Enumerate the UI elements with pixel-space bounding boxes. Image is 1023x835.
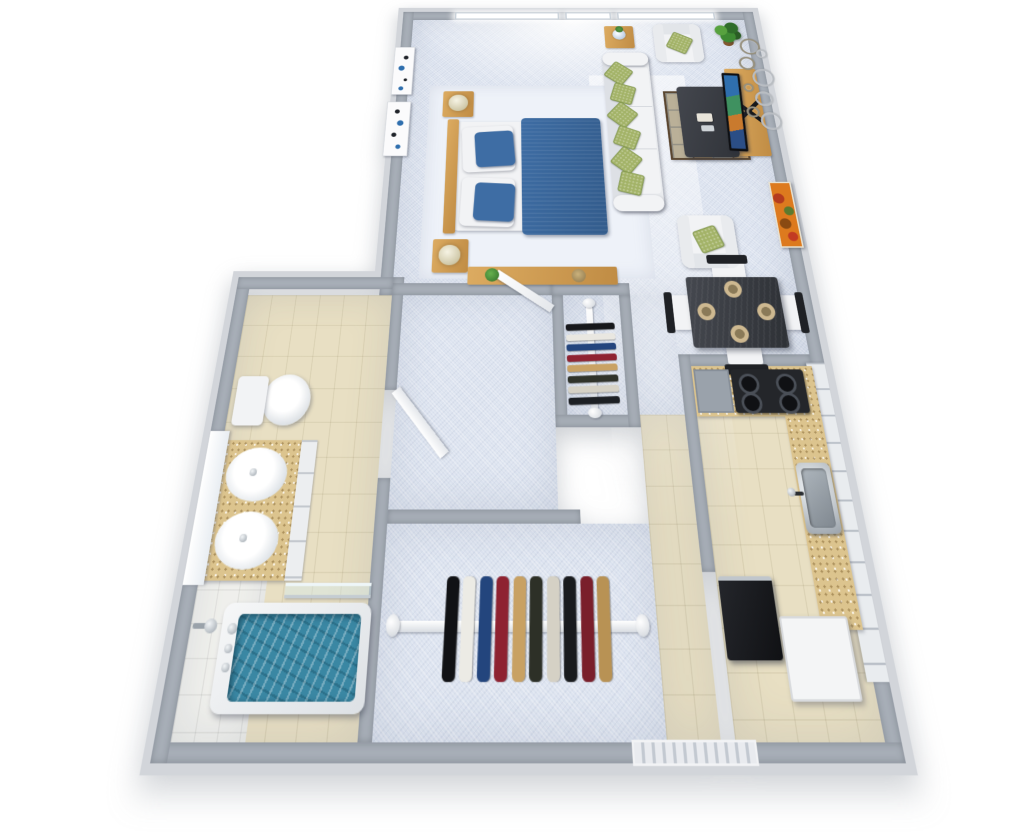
- wall-art-dots-1: [391, 47, 415, 95]
- burner-4: [778, 393, 802, 414]
- window-pane-middle: [565, 12, 611, 19]
- bed-pillow-blue-bottom: [473, 182, 516, 222]
- burner-3: [740, 393, 764, 414]
- bathtub-water: [226, 614, 361, 702]
- apartment-3d-scene: [108, 12, 906, 763]
- wall-bottom: [150, 742, 906, 763]
- clothing-item: [529, 576, 542, 682]
- apartment-plan: [108, 12, 906, 763]
- small-closet-rod-cap-top: [582, 298, 595, 307]
- clothing-item: [547, 576, 560, 682]
- floorplan-canvas: [0, 0, 1023, 835]
- vase-greenery: [615, 26, 623, 32]
- bed-blue-blanket: [521, 118, 608, 235]
- burner-1: [737, 374, 760, 395]
- clothing-item: [512, 576, 526, 682]
- console-round-tray: [571, 269, 586, 282]
- kitchen-gray-cabinet: [693, 369, 734, 412]
- small-closet-clothes: [566, 323, 621, 404]
- window-pane-left: [455, 12, 559, 19]
- clothing-item: [566, 323, 615, 331]
- sofa-arm-bottom: [613, 195, 665, 211]
- small-closet-rod-cap-bottom: [588, 408, 602, 419]
- window-pane-right: [617, 12, 715, 19]
- bed-pillow-blue-top: [474, 130, 515, 167]
- clothing-item: [568, 385, 619, 394]
- circle-ring: [754, 91, 775, 106]
- outer-wall-band-bottom: [139, 763, 917, 775]
- entry-door-threshold: [631, 740, 759, 766]
- circle-ring: [738, 57, 757, 70]
- bathtub: [208, 603, 372, 715]
- clothing-item: [567, 364, 618, 373]
- clothing-item: [476, 576, 492, 682]
- clothing-item: [566, 333, 616, 341]
- dining-chair-top-back: [706, 255, 748, 264]
- main-closet-clothes: [443, 576, 614, 682]
- circle-ring: [743, 83, 755, 92]
- clothing-item: [563, 576, 577, 682]
- burner-2: [774, 374, 798, 395]
- gas-cooktop: [730, 369, 810, 412]
- dining-chair-bottom-seat: [726, 346, 764, 364]
- console-small-plant: [485, 268, 499, 281]
- wall-bathroom-top: [237, 277, 394, 289]
- wall-top-window: [403, 12, 755, 20]
- floor-hallway: [388, 295, 558, 509]
- wall-art-dots-2: [382, 102, 411, 156]
- coffee-table-remote: [701, 125, 715, 131]
- circle-ring: [746, 106, 761, 117]
- clothing-item: [459, 576, 476, 682]
- clothing-item: [567, 353, 617, 361]
- circle-ring: [751, 69, 776, 87]
- clothing-item: [568, 374, 619, 383]
- clothing-item: [494, 576, 509, 682]
- sink-basin: [800, 468, 836, 527]
- wall-main-closet-top: [387, 509, 580, 523]
- coffee-table-books: [696, 113, 713, 121]
- clothing-item: [566, 343, 616, 351]
- clothing-item: [580, 576, 595, 682]
- towel-bar-glass-shelf: [284, 583, 372, 598]
- sofa-arm-top: [602, 52, 649, 65]
- wall-small-closet-top: [551, 283, 630, 295]
- clothing-item: [568, 396, 620, 405]
